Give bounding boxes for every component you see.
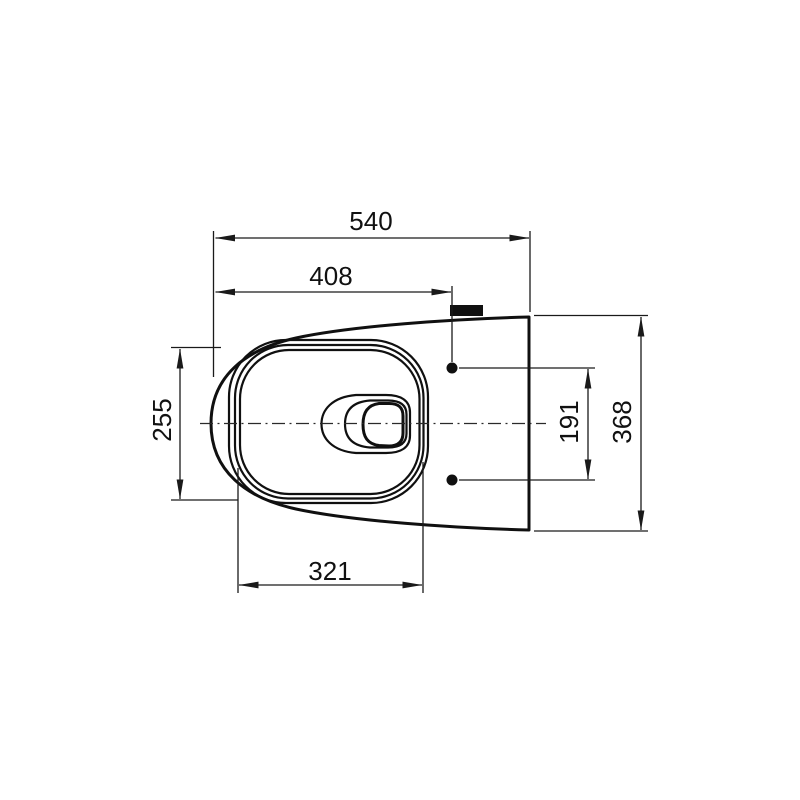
drawing-page: 540 408 255 321 191 368 <box>0 0 800 800</box>
inlet-block <box>450 305 483 316</box>
seat-rim-middle <box>235 345 424 499</box>
drain-outlet <box>363 404 403 447</box>
seat-rim-outer <box>229 340 428 503</box>
dim-label-540: 540 <box>349 206 392 236</box>
fixing-hole-bottom <box>447 475 458 486</box>
dim-label-408: 408 <box>309 261 352 291</box>
technical-drawing-svg: 540 408 255 321 191 368 <box>0 0 800 800</box>
dim-label-321: 321 <box>308 556 351 586</box>
dim-label-191: 191 <box>554 400 584 443</box>
bowl-opening <box>240 350 420 494</box>
dim-label-255: 255 <box>147 398 177 441</box>
fixing-hole-top <box>447 363 458 374</box>
dim-label-368: 368 <box>607 400 637 443</box>
